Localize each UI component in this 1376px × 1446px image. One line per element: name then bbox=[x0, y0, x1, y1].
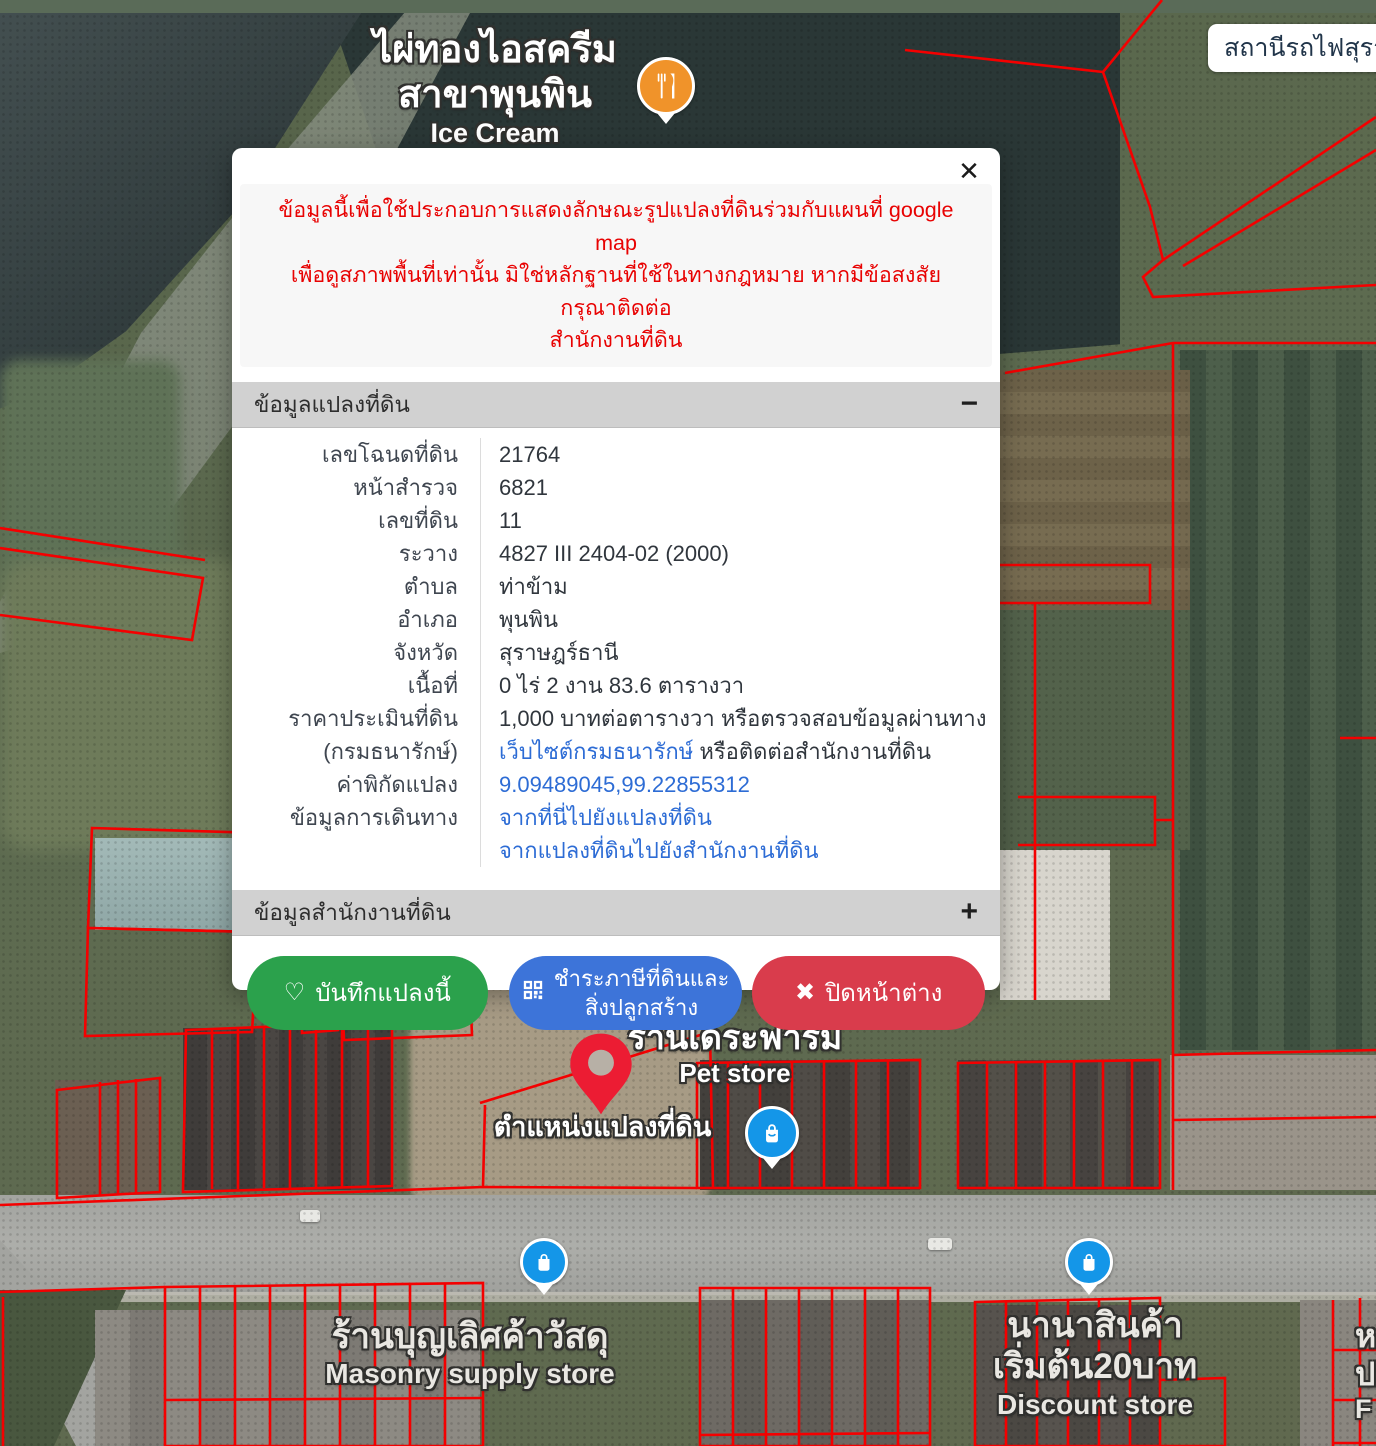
screenshot-stage: ไผ่ทองไอสครีม สาขาพุนพิน Ice Cream สถานี… bbox=[0, 0, 1376, 1446]
table-row: หน้าสำรวจ6821 bbox=[232, 471, 1000, 504]
section-title: ข้อมูลแปลงที่ดิน bbox=[254, 386, 410, 422]
poi-label-partial: ห ป F bbox=[1355, 1318, 1376, 1425]
terrain-orchard bbox=[1180, 350, 1376, 1050]
table-row: อำเภอพุนพิน bbox=[232, 603, 1000, 636]
section-title: ข้อมูลสำนักงานที่ดิน bbox=[254, 894, 451, 930]
car bbox=[300, 1210, 320, 1222]
directions-to-parcel-link[interactable]: จากที่นี่ไปยังแปลงที่ดิน bbox=[499, 801, 1000, 834]
table-row-directions: ข้อมูลการเดินทาง จากที่นี่ไปยังแปลงที่ดิ… bbox=[232, 801, 1000, 867]
close-window-button[interactable]: ✖ ปิดหน้าต่าง bbox=[752, 956, 985, 1030]
terrain-field bbox=[990, 610, 1190, 850]
terrain-field bbox=[0, 560, 250, 850]
building-roof bbox=[1000, 850, 1110, 1000]
table-row: ตำบลท่าข้าม bbox=[232, 570, 1000, 603]
table-row-appraisal: ราคาประเมินที่ดิน (กรมธนารักษ์) 1,000 บา… bbox=[232, 702, 1000, 768]
poi-label-discount: นานาสินค้า เริ่มต้น20บาท Discount store bbox=[955, 1305, 1235, 1421]
directions-to-office-link[interactable]: จากแปลงที่ดินไปยังสำนักงานที่ดิน bbox=[499, 834, 1000, 867]
building-roof bbox=[700, 1300, 930, 1446]
shopping-bag-icon bbox=[745, 1106, 799, 1160]
x-icon: ✖ bbox=[795, 981, 815, 1005]
expand-plus-icon[interactable]: + bbox=[960, 897, 978, 927]
shopping-poi[interactable] bbox=[520, 1238, 568, 1295]
pin-label: ตำแหน่งแปลงที่ดิน bbox=[460, 1112, 745, 1144]
table-row: ระวาง4827 III 2404-02 (2000) bbox=[232, 537, 1000, 570]
road bbox=[0, 1195, 1376, 1295]
sidewalk bbox=[0, 1292, 1376, 1302]
table-row: เนื้อที่0 ไร่ 2 งาน 83.6 ตารางวา bbox=[232, 669, 1000, 702]
building-roof bbox=[183, 1028, 393, 1190]
collapse-minus-icon[interactable]: − bbox=[960, 389, 978, 419]
parcel-location-pin[interactable] bbox=[566, 1032, 636, 1116]
building-roof bbox=[55, 1080, 160, 1195]
pay-tax-button[interactable]: ชำระภาษีที่ดินและ สิ่งปลูกสร้าง bbox=[509, 956, 743, 1030]
section-header-land-office[interactable]: ข้อมูลสำนักงานที่ดิน + bbox=[232, 890, 1000, 936]
save-parcel-button[interactable]: ♡ บันทึกแปลงนี้ bbox=[247, 956, 488, 1030]
poi-label-masonry: ร้านบุญเลิศค้าวัสดุ Masonry supply store bbox=[290, 1316, 650, 1390]
building-roof bbox=[958, 1060, 1160, 1190]
parcel-info-modal: ✕ ข้อมูลนี้เพื่อใช้ประกอบการแสดงลักษณะรู… bbox=[232, 148, 1000, 990]
building-roof bbox=[1170, 1055, 1376, 1190]
shopping-bag-icon bbox=[520, 1238, 568, 1286]
table-row: จังหวัดสุราษฎร์ธานี bbox=[232, 636, 1000, 669]
section-header-parcel-info[interactable]: ข้อมูลแปลงที่ดิน − bbox=[232, 382, 1000, 428]
table-row-coordinates: ค่าพิกัดแปลง 9.09489045,99.22855312 bbox=[232, 768, 1000, 801]
shopping-bag-icon bbox=[1065, 1238, 1113, 1286]
terrain-field bbox=[990, 370, 1190, 610]
table-row: เลขที่ดิน11 bbox=[232, 504, 1000, 537]
heart-icon: ♡ bbox=[284, 981, 306, 1005]
parcel-detail-table: เลขโฉนดที่ดิน21764 หน้าสำรวจ6821 เลขที่ด… bbox=[232, 428, 1000, 875]
qr-code-icon bbox=[522, 979, 544, 1006]
close-icon[interactable]: ✕ bbox=[952, 154, 986, 188]
shopping-poi[interactable] bbox=[745, 1106, 799, 1169]
shopping-poi[interactable] bbox=[1065, 1238, 1113, 1295]
restaurant-icon bbox=[637, 57, 695, 115]
restaurant-poi[interactable] bbox=[637, 57, 695, 124]
coordinates-link[interactable]: 9.09489045,99.22855312 bbox=[499, 772, 750, 797]
car bbox=[928, 1238, 952, 1250]
treasury-website-link[interactable]: เว็บไซต์กรมธนารักษ์ bbox=[499, 739, 693, 764]
poi-label-ice-cream: ไผ่ทองไอสครีม สาขาพุนพิน Ice Cream bbox=[350, 28, 640, 150]
station-label[interactable]: สถานีรถไฟสุราษฎร์ธานี bbox=[1208, 24, 1376, 72]
modal-button-row: ♡ บันทึกแปลงนี้ ชำระภาษีที่ดินและ สิ่งปล… bbox=[232, 956, 1000, 1030]
legal-warning-text: ข้อมูลนี้เพื่อใช้ประกอบการแสดงลักษณะรูปแ… bbox=[240, 184, 992, 367]
table-row: เลขโฉนดที่ดิน21764 bbox=[232, 438, 1000, 471]
